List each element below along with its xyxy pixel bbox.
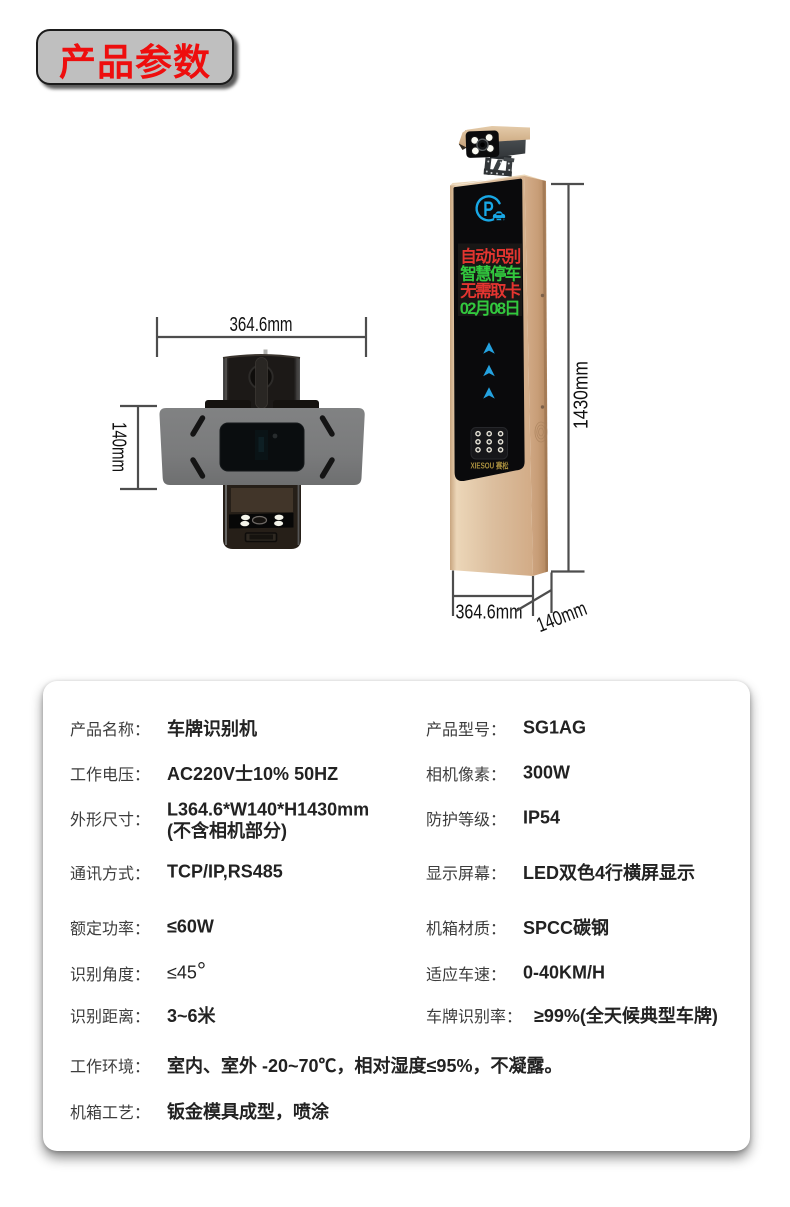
svg-text:364.6mm: 364.6mm xyxy=(230,313,293,336)
svg-text:无需取卡: 无需取卡 xyxy=(459,281,521,301)
svg-text:140mm: 140mm xyxy=(108,422,131,472)
svg-text:140mm: 140mm xyxy=(533,597,590,637)
svg-text:P: P xyxy=(483,198,494,221)
svg-text:XIESOU 赛松: XIESOU 赛松 xyxy=(471,460,509,470)
svg-text:自动识别: 自动识别 xyxy=(460,246,521,266)
svg-text:364.6mm: 364.6mm xyxy=(456,601,523,624)
svg-text:02月08日: 02月08日 xyxy=(460,299,521,318)
svg-text:智慧停车: 智慧停车 xyxy=(460,263,521,283)
svg-text:1430mm: 1430mm xyxy=(570,361,593,429)
